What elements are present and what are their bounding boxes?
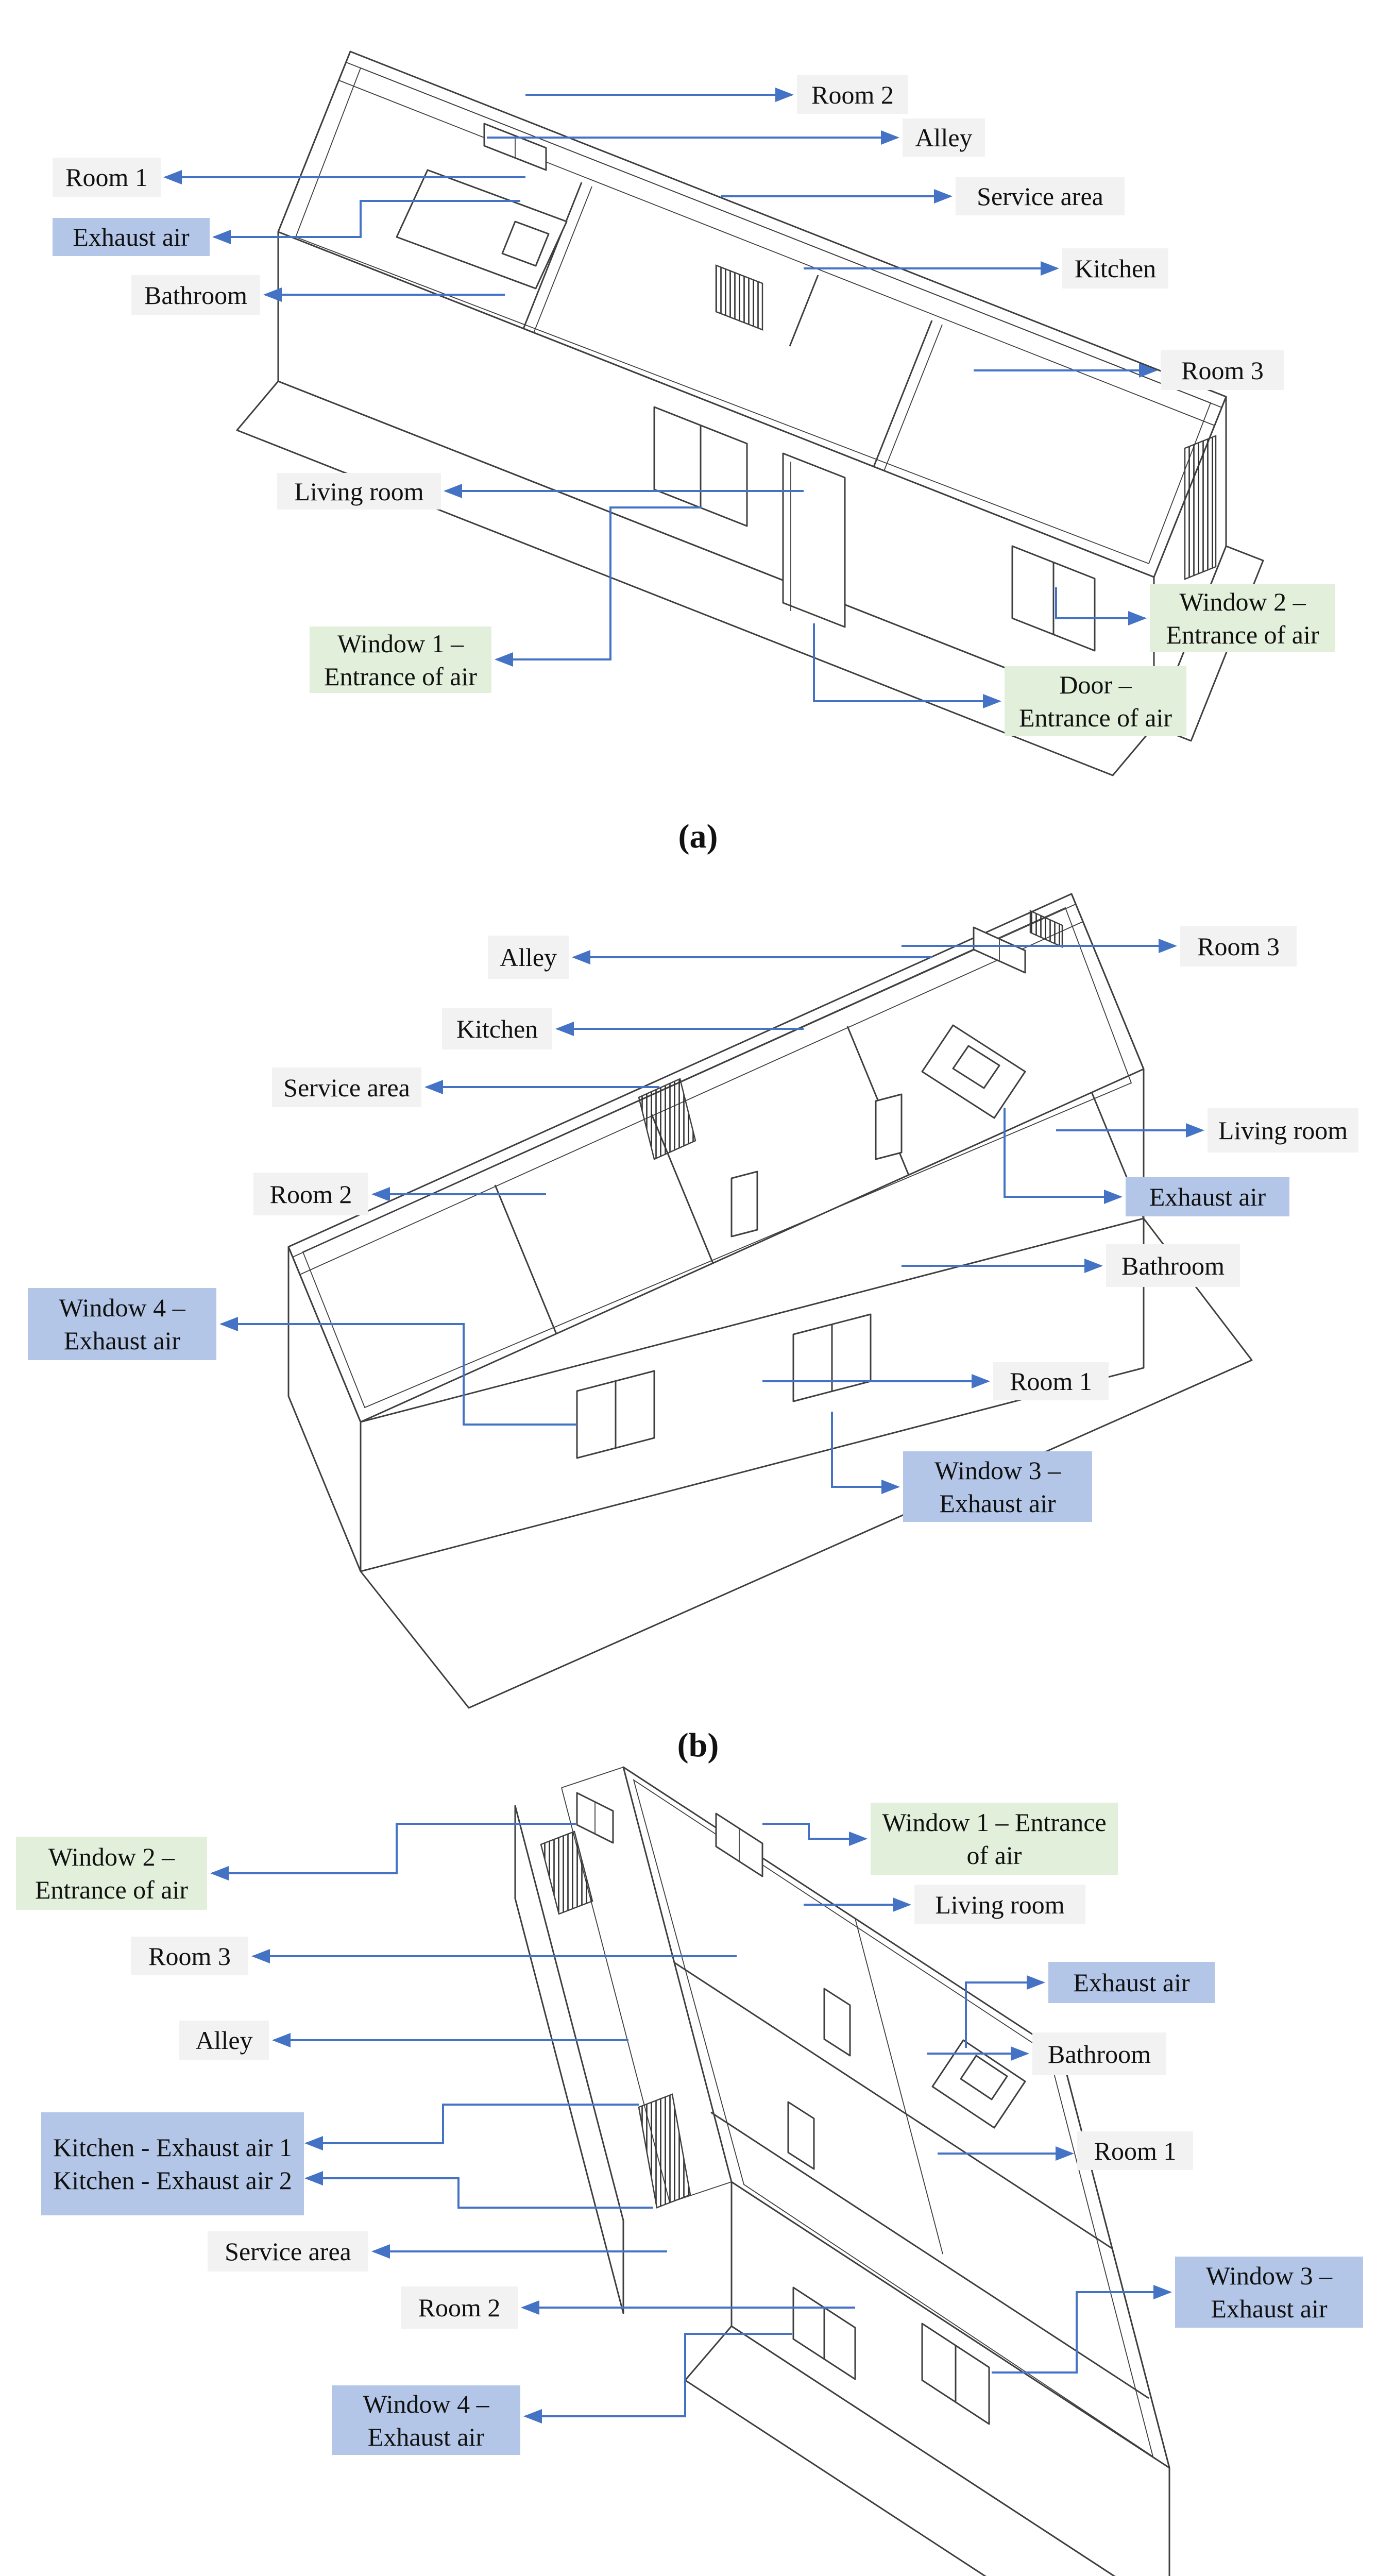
label-c-window-4-exhaust: Window 4 –Exhaust air	[332, 2385, 520, 2455]
label-text-line: Alley	[195, 2024, 252, 2057]
label-text-line: Window 2 –	[1179, 585, 1305, 618]
label-text-line: Entrance of air	[1019, 701, 1172, 734]
label-text-line: Window 4 –	[59, 1291, 185, 1324]
label-c-room-2: Room 2	[401, 2286, 518, 2329]
label-text-line: Window 2 –	[48, 1840, 175, 1873]
label-text-line: Exhaust air	[1149, 1180, 1266, 1213]
label-text-line: Door –	[1059, 668, 1131, 701]
label-b-window-3-exhaust: Window 3 –Exhaust air	[903, 1451, 1092, 1522]
label-text-line: Alley	[500, 941, 557, 974]
label-text-line: of air	[967, 1839, 1022, 1872]
label-a-window-2-entrance: Window 2 –Entrance of air	[1150, 584, 1335, 652]
label-text-line: Exhaust air	[1211, 2292, 1327, 2325]
label-a-room-2: Room 2	[797, 75, 908, 114]
label-text-line: Room 1	[65, 161, 148, 194]
label-text-line: Service area	[283, 1071, 410, 1104]
label-a-living-room: Living room	[277, 473, 441, 510]
label-c-window-3-exhaust: Window 3 –Exhaust air	[1175, 2257, 1363, 2328]
label-b-living-room: Living room	[1208, 1108, 1358, 1153]
label-text-line: Entrance of air	[35, 1873, 188, 1906]
label-b-room-3: Room 3	[1180, 926, 1297, 967]
label-c-room-1: Room 1	[1077, 2131, 1193, 2170]
label-c-alley: Alley	[179, 2021, 269, 2060]
label-text-line: Kitchen - Exhaust air 2	[53, 2164, 292, 2197]
label-text-line: Bathroom	[1048, 2038, 1151, 2071]
label-text-line: Room 3	[148, 1940, 231, 1973]
label-text-line: Living room	[935, 1888, 1064, 1921]
label-b-exhaust-air: Exhaust air	[1126, 1177, 1289, 1216]
label-text-line: Room 1	[1010, 1365, 1092, 1398]
label-text-line: Service area	[977, 180, 1103, 213]
label-a-exhaust-air: Exhaust air	[53, 218, 210, 256]
label-text-line: Window 3 –	[934, 1454, 1061, 1487]
label-text-line: Kitchen - Exhaust air 1	[53, 2131, 292, 2164]
label-text-line: Bathroom	[144, 279, 247, 312]
label-b-window-4-exhaust: Window 4 –Exhaust air	[28, 1288, 216, 1360]
label-b-room-1: Room 1	[993, 1362, 1109, 1400]
label-text-line: Room 1	[1094, 2134, 1177, 2167]
label-c-kitchen-exhaust: Kitchen - Exhaust air 1Kitchen - Exhaust…	[41, 2112, 304, 2215]
label-text-line: Entrance of air	[1166, 618, 1319, 651]
label-a-kitchen: Kitchen	[1062, 248, 1168, 289]
label-c-bathroom: Bathroom	[1032, 2032, 1166, 2075]
label-text-line: Window 1 – Entrance	[882, 1806, 1106, 1839]
label-text-line: Exhaust air	[73, 221, 189, 253]
label-text-line: Room 2	[270, 1178, 352, 1211]
label-c-service-area: Service area	[208, 2231, 368, 2272]
label-b-alley: Alley	[488, 936, 569, 979]
label-a-alley: Alley	[903, 118, 985, 157]
label-text-line: Room 2	[811, 78, 894, 111]
label-c-window-2-entrance: Window 2 –Entrance of air	[16, 1837, 207, 1910]
label-a-window-1-entrance: Window 1 –Entrance of air	[310, 626, 491, 693]
panel-caption-b: (b)	[677, 1726, 719, 1765]
label-text-line: Exhaust air	[64, 1324, 180, 1357]
label-c-room-3: Room 3	[131, 1937, 248, 1975]
panel-caption-a: (a)	[678, 817, 718, 856]
label-text-line: Alley	[915, 121, 972, 154]
label-a-room-1: Room 1	[53, 158, 161, 197]
label-text-line: Entrance of air	[324, 660, 477, 693]
labels-layer: Room 1Exhaust airBathroomRoom 2AlleyServ…	[0, 0, 1394, 2576]
label-text-line: Exhaust air	[1073, 1966, 1189, 1999]
label-text-line: Window 4 –	[363, 2387, 489, 2420]
label-a-service-area: Service area	[956, 177, 1125, 215]
label-b-room-2: Room 2	[253, 1173, 368, 1215]
label-a-room-3: Room 3	[1161, 350, 1284, 390]
label-text-line: Living room	[294, 475, 423, 508]
label-text-line: Bathroom	[1121, 1249, 1225, 1282]
label-c-window-1-entrance: Window 1 – Entranceof air	[871, 1803, 1118, 1875]
label-b-bathroom: Bathroom	[1106, 1244, 1240, 1287]
label-text-line: Exhaust air	[368, 2420, 484, 2453]
label-text-line: Kitchen	[1075, 252, 1156, 285]
label-text-line: Living room	[1218, 1114, 1348, 1147]
label-b-service-area: Service area	[272, 1067, 421, 1107]
label-text-line: Room 2	[418, 2291, 501, 2324]
label-text-line: Window 3 –	[1206, 2259, 1332, 2292]
label-b-kitchen: Kitchen	[442, 1008, 552, 1049]
label-c-exhaust-air: Exhaust air	[1048, 1962, 1215, 2003]
label-text-line: Kitchen	[456, 1012, 538, 1045]
label-c-living-room: Living room	[914, 1885, 1085, 1924]
label-text-line: Exhaust air	[939, 1487, 1056, 1520]
label-text-line: Service area	[225, 2235, 351, 2268]
label-a-door-entrance: Door –Entrance of air	[1005, 666, 1186, 736]
label-a-bathroom: Bathroom	[131, 275, 260, 315]
label-text-line: Room 3	[1181, 354, 1264, 387]
label-text-line: Room 3	[1197, 930, 1280, 963]
label-text-line: Window 1 –	[337, 627, 464, 660]
